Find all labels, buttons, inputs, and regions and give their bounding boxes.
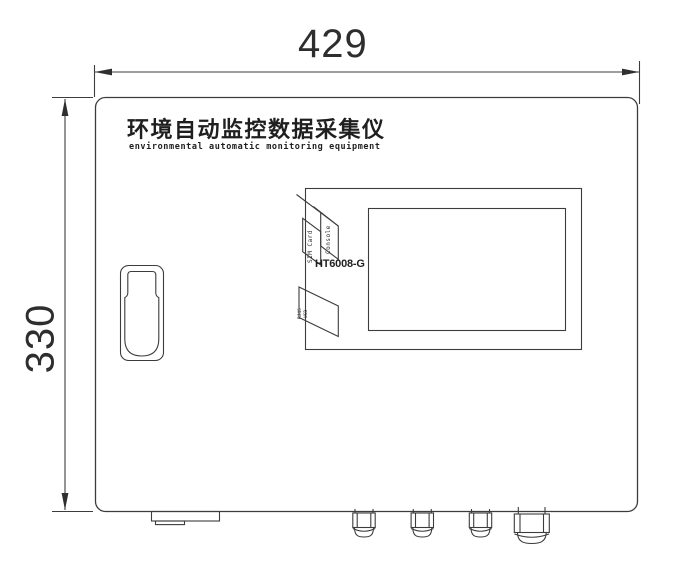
dimension-height-label: 330 xyxy=(19,239,64,439)
technical-drawing-canvas: 429 330 环境自动监控数据采集仪 environmental automa… xyxy=(0,0,692,565)
cable-gland-3 xyxy=(469,509,491,537)
device-title-zh: 环境自动监控数据采集仪 xyxy=(127,112,386,144)
bottom-flange-tab xyxy=(156,521,185,525)
door-handle xyxy=(121,266,164,361)
screen-outline xyxy=(369,209,566,331)
usb-port-label: USB xyxy=(304,295,309,318)
device-title-en: environmental automatic monitoring equip… xyxy=(129,142,381,152)
console-port-label: Console xyxy=(325,218,332,254)
dimension-width-label: 429 xyxy=(298,22,368,67)
rj45-port-label: RJ45 xyxy=(298,292,303,319)
bottom-flange-body xyxy=(152,512,220,522)
dimension-width-arrow-left xyxy=(95,69,113,76)
cable-gland-2 xyxy=(411,509,433,537)
dimension-height-arrow-top xyxy=(62,99,69,116)
door-handle-bezel xyxy=(121,266,164,361)
drawing-linework xyxy=(0,0,692,565)
cable-gland-4-large xyxy=(514,507,549,544)
sim-card-port-label: SIM Card xyxy=(307,225,314,263)
enclosure-outline xyxy=(96,98,638,512)
dimension-width-arrow-right xyxy=(622,69,640,76)
bottom-flange xyxy=(152,512,220,525)
cable-gland-1 xyxy=(353,509,375,537)
dimension-height-arrow-bottom xyxy=(62,493,69,510)
door-handle-grip xyxy=(125,272,159,357)
model-number-label: HT6008-G xyxy=(315,258,365,270)
